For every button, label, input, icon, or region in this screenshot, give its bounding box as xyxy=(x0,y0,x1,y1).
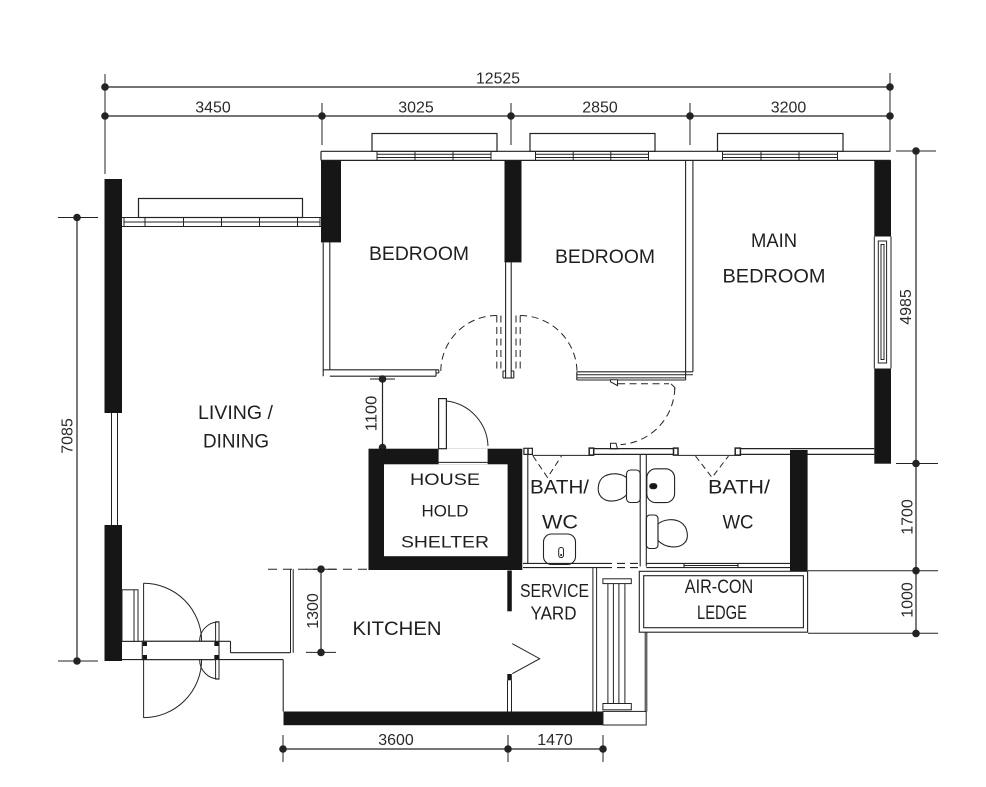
svg-text:3025: 3025 xyxy=(398,99,434,116)
svg-text:BEDROOM: BEDROOM xyxy=(555,247,655,268)
svg-text:BATH/: BATH/ xyxy=(530,477,590,498)
svg-text:MAIN: MAIN xyxy=(751,231,797,252)
svg-text:1300: 1300 xyxy=(305,593,322,629)
svg-text:HOUSE: HOUSE xyxy=(410,470,480,489)
svg-text:LIVING /: LIVING / xyxy=(198,403,274,424)
svg-text:2850: 2850 xyxy=(582,99,618,116)
svg-text:BEDROOM: BEDROOM xyxy=(723,266,826,287)
svg-text:LEDGE: LEDGE xyxy=(697,603,747,624)
svg-text:WC: WC xyxy=(723,512,754,533)
svg-text:1100: 1100 xyxy=(363,396,380,432)
svg-text:BEDROOM: BEDROOM xyxy=(369,244,469,265)
svg-text:3450: 3450 xyxy=(195,99,231,116)
svg-text:SERVICE: SERVICE xyxy=(520,581,589,601)
svg-text:DINING: DINING xyxy=(203,431,269,452)
svg-text:SHELTER: SHELTER xyxy=(401,532,489,551)
svg-text:3200: 3200 xyxy=(771,99,807,116)
svg-text:3600: 3600 xyxy=(378,732,414,749)
svg-text:4985: 4985 xyxy=(898,289,915,325)
svg-text:YARD: YARD xyxy=(531,604,577,624)
svg-text:1470: 1470 xyxy=(537,732,573,749)
svg-text:12525: 12525 xyxy=(476,70,520,87)
svg-text:AIR-CON: AIR-CON xyxy=(685,577,754,598)
svg-text:WC: WC xyxy=(542,512,578,533)
svg-text:1700: 1700 xyxy=(899,499,916,535)
svg-text:KITCHEN: KITCHEN xyxy=(353,619,442,640)
svg-text:HOLD: HOLD xyxy=(422,501,469,520)
svg-text:BATH/: BATH/ xyxy=(708,477,771,498)
svg-text:7085: 7085 xyxy=(59,418,76,454)
svg-text:1000: 1000 xyxy=(899,582,916,618)
